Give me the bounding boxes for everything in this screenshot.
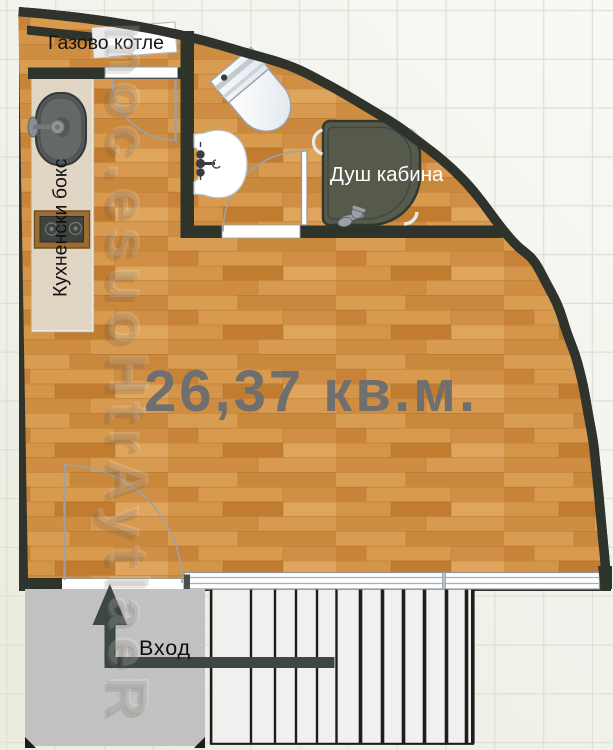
- svg-text:moc.esuoHtrAytlaeR: moc.esuoHtrAytlaeR: [95, 24, 159, 727]
- svg-text:26,37 кв.м.: 26,37 кв.м.: [144, 359, 478, 424]
- svg-text:Душ кабина: Душ кабина: [330, 163, 444, 186]
- svg-text:Кухненски бокс: Кухненски бокс: [50, 158, 72, 297]
